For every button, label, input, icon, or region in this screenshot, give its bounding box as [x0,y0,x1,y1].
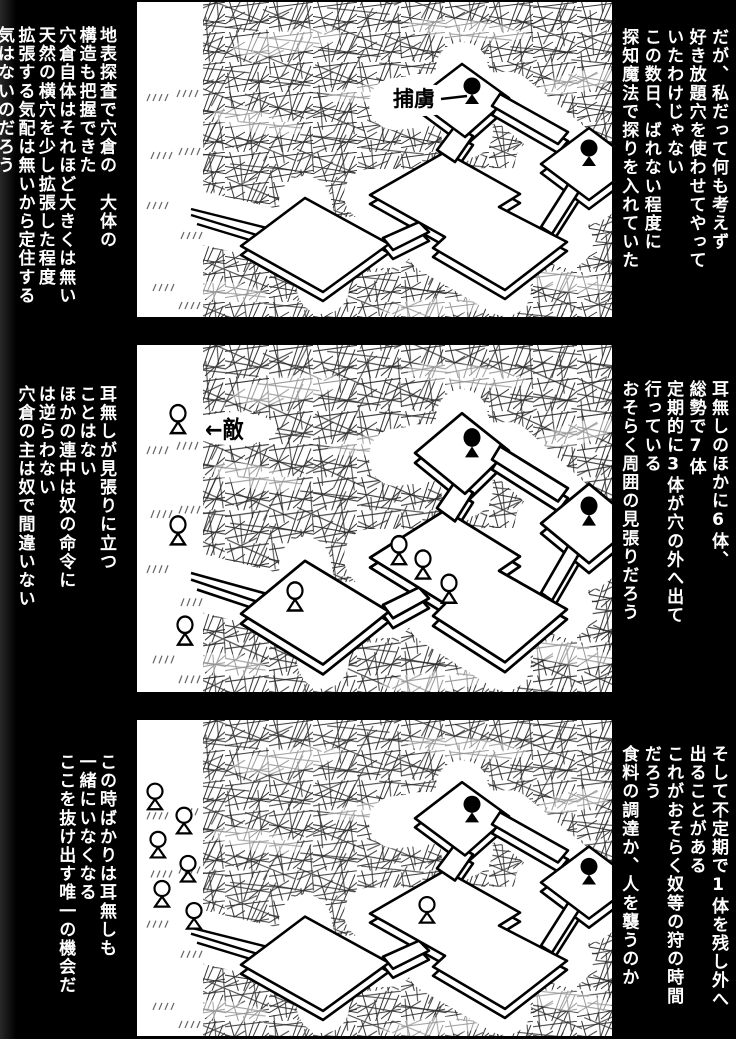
panel-2: ←敵 [137,345,612,692]
enemy-figure [177,808,192,834]
enemy-figure [171,405,186,433]
narration-panel-1-right: だが、私だって何も考えず 好き放題穴を使わせてやって いたわけじゃない この数日… [619,28,729,328]
narration-panel-3-right: そして不定期で1体を残し外へ 出ることがある これがおそらく奴等の狩の時間 だろ… [619,745,729,1033]
panel-1: 捕虜 [137,2,612,317]
cave-map-panel-3 [137,720,612,1036]
cave-map-art [137,2,612,317]
narration-panel-1-left: 地表探査で穴倉の 大体の 構造も把握できた 穴倉自体はそれほど大きくは無い 天然… [0,26,116,316]
enemy-figure [392,536,407,564]
cave-map-art [137,720,612,1036]
enemy-figure [151,832,166,858]
enemy-figure [181,856,196,882]
enemy-figure [187,903,202,929]
manga-page: 捕虜 ←敵 だが、私だって何も考えず 好き放題穴を使わせてやって いたわけじゃな… [0,0,736,1039]
narration-panel-2-left: 耳無しが見張りに立つ ことはない ほかの連中は奴の命令に は逆らわない 穴倉の主… [0,385,116,685]
enemy-figure [288,582,303,610]
enemy-figure [442,575,457,603]
cave-map-panel-1: 捕虜 [137,2,612,317]
enemy-figure [416,550,431,578]
narration-panel-3-left: この時ばかりは耳無しも 一緒にいなくなる ここを抜け出す唯一の機会だ [0,753,116,1033]
narration-panel-2-right: 耳無しのほかに6体、 総勢で7体 定期的に3体が穴の外へ出て 行っている おそら… [619,380,729,680]
enemy-figure [171,516,186,544]
enemy-figure [155,881,170,907]
cave-map-panel-2: ←敵 [137,345,612,692]
cave-map-art [137,345,612,692]
enemy-label: ←敵 [205,417,244,444]
captive-label: 捕虜 [393,87,435,111]
enemy-figure [178,617,193,645]
enemy-figure [148,784,163,810]
enemy-figure [420,897,435,923]
panel-3 [137,720,612,1036]
